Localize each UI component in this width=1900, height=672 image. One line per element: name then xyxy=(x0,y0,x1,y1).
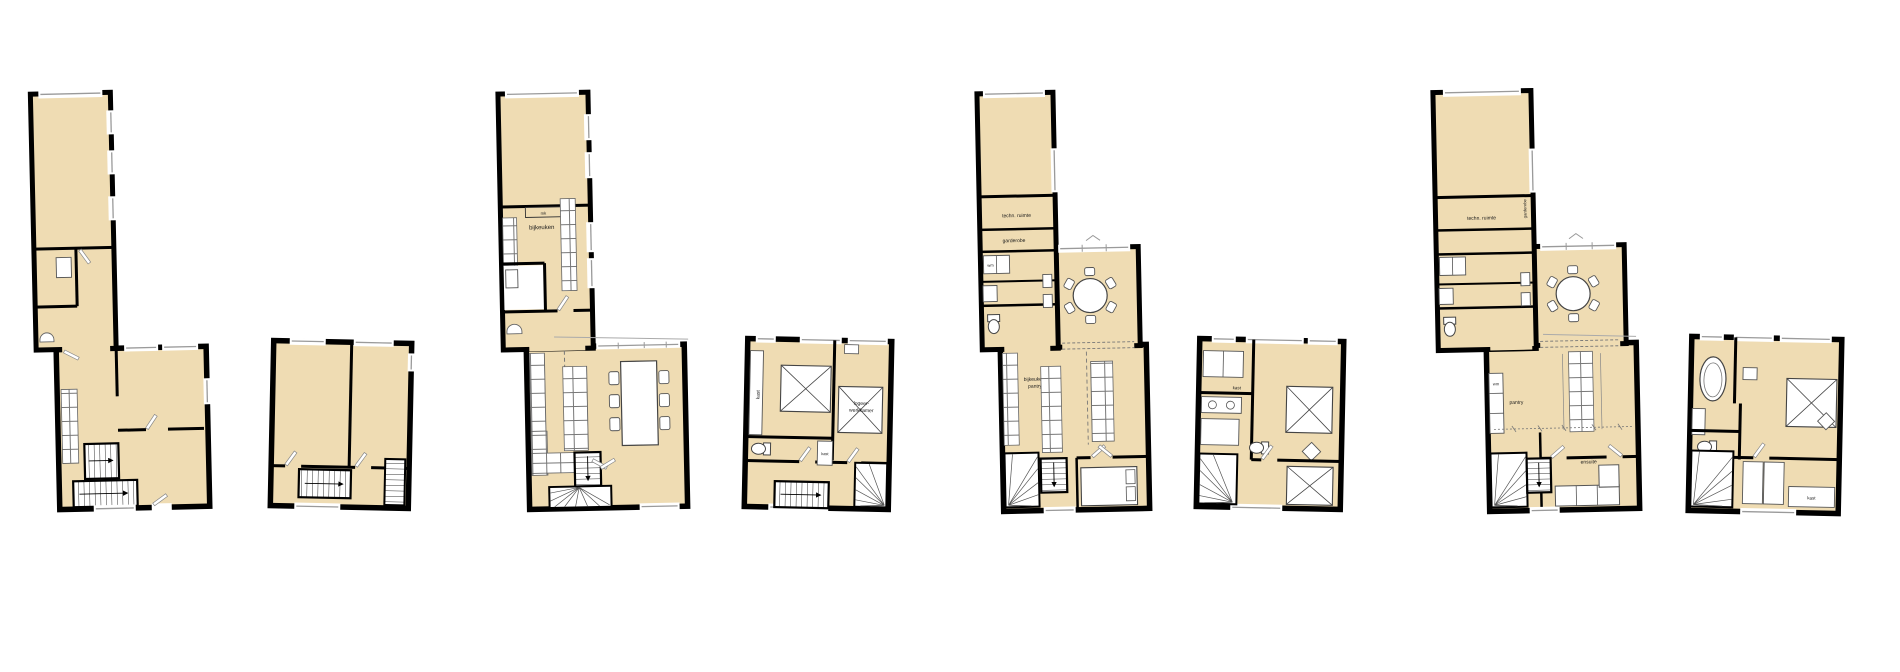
room-label-logeer: logeer- xyxy=(854,401,870,407)
floor-plans-canvas: mk bijkeuken xyxy=(0,0,1900,672)
cabinet xyxy=(1521,293,1530,306)
room-label-wm: wm xyxy=(987,263,994,268)
plan-d-first: kast xyxy=(1688,333,1842,517)
room-label-ensuite: ensuite xyxy=(1581,459,1597,465)
spiral-stairs-icon xyxy=(1198,454,1237,505)
window xyxy=(1044,506,1076,514)
spiral-stairs-icon xyxy=(1690,450,1733,507)
window xyxy=(1058,243,1130,253)
room-label-wm: wm xyxy=(1493,381,1500,386)
bed-icon xyxy=(1286,466,1333,505)
room-label-werkkamer: werkkamer xyxy=(849,408,874,415)
room-label-kast: kast xyxy=(1233,385,1242,390)
bathtub-icon xyxy=(1699,357,1726,402)
washbasin xyxy=(1743,368,1757,380)
room-label-garderobe: garderobe xyxy=(1003,238,1026,244)
plan-c-ground: techn. ruimte garderobe wm xyxy=(977,87,1150,515)
toilet-icon xyxy=(988,314,1000,333)
room-label-garderobe: garderobe xyxy=(1522,198,1527,218)
window xyxy=(640,503,680,511)
plan-c-first: kast kast xyxy=(1196,335,1344,513)
fixture xyxy=(506,270,518,288)
floor-plan-sheet: mk bijkeuken xyxy=(0,0,1900,672)
plan-b-ground: mk bijkeuken xyxy=(498,87,692,513)
wardrobe xyxy=(61,389,79,463)
spiral-stairs-icon xyxy=(549,486,611,508)
stairs-icon xyxy=(574,452,601,487)
wardrobe xyxy=(1763,462,1784,504)
room-label-mk: mk xyxy=(541,211,548,216)
roof-edge xyxy=(1569,233,1583,238)
kitchen-counter xyxy=(1002,353,1019,445)
toilet-icon xyxy=(751,443,770,455)
room-label-bijkeuken: bijkeuken xyxy=(529,225,554,232)
kitchen-counter xyxy=(529,353,546,431)
room-label-pantry: pantry xyxy=(1509,400,1524,406)
bed-icon xyxy=(1286,386,1333,433)
kitchen-island xyxy=(1568,351,1594,431)
window xyxy=(1530,507,1560,515)
room-label-kast: kast xyxy=(756,389,762,399)
plan-a-first xyxy=(270,337,415,512)
cabinet xyxy=(1043,274,1052,287)
kitchen-island xyxy=(1091,361,1115,441)
plan-a-ground xyxy=(30,87,213,514)
bed-icon xyxy=(1081,467,1138,506)
kitchen-counter xyxy=(503,218,518,266)
stairs-icon xyxy=(1041,458,1068,493)
fixture xyxy=(56,257,71,277)
plan-b-first: kast logeer- werkkamer kast xyxy=(744,335,892,513)
room-label-kast: kast xyxy=(821,451,829,456)
room-label-techn-ruimte: techn. ruimte xyxy=(1002,213,1031,220)
shower xyxy=(1439,288,1453,304)
stairs-icon xyxy=(1527,458,1552,492)
spiral-stairs-icon xyxy=(1490,453,1527,508)
room-label-techn-ruimte: techn. ruimte xyxy=(1467,215,1496,222)
plan-d-ground: techn. ruimte garderobe xyxy=(1433,85,1640,516)
roof-edge xyxy=(1086,235,1100,240)
stairs-icon xyxy=(774,481,829,508)
fixture xyxy=(845,345,859,354)
shower xyxy=(983,285,997,301)
kitchen-counter xyxy=(1041,366,1063,452)
washer xyxy=(1201,419,1240,446)
wardrobe xyxy=(1742,462,1763,504)
kitchen-island xyxy=(563,366,589,450)
washbasin-counter xyxy=(1201,397,1241,414)
spiral-stairs-icon xyxy=(854,463,887,508)
cabinet xyxy=(1521,273,1530,286)
room-label-kast: kast xyxy=(1807,495,1816,500)
spiral-stairs-icon xyxy=(1004,453,1039,508)
toilet-icon xyxy=(1444,317,1456,336)
room-label-pantry: pantry xyxy=(1028,384,1043,390)
cabinet xyxy=(1043,294,1052,307)
kitchen-counter xyxy=(560,198,577,290)
bed-icon xyxy=(780,365,831,412)
window xyxy=(1540,241,1616,251)
